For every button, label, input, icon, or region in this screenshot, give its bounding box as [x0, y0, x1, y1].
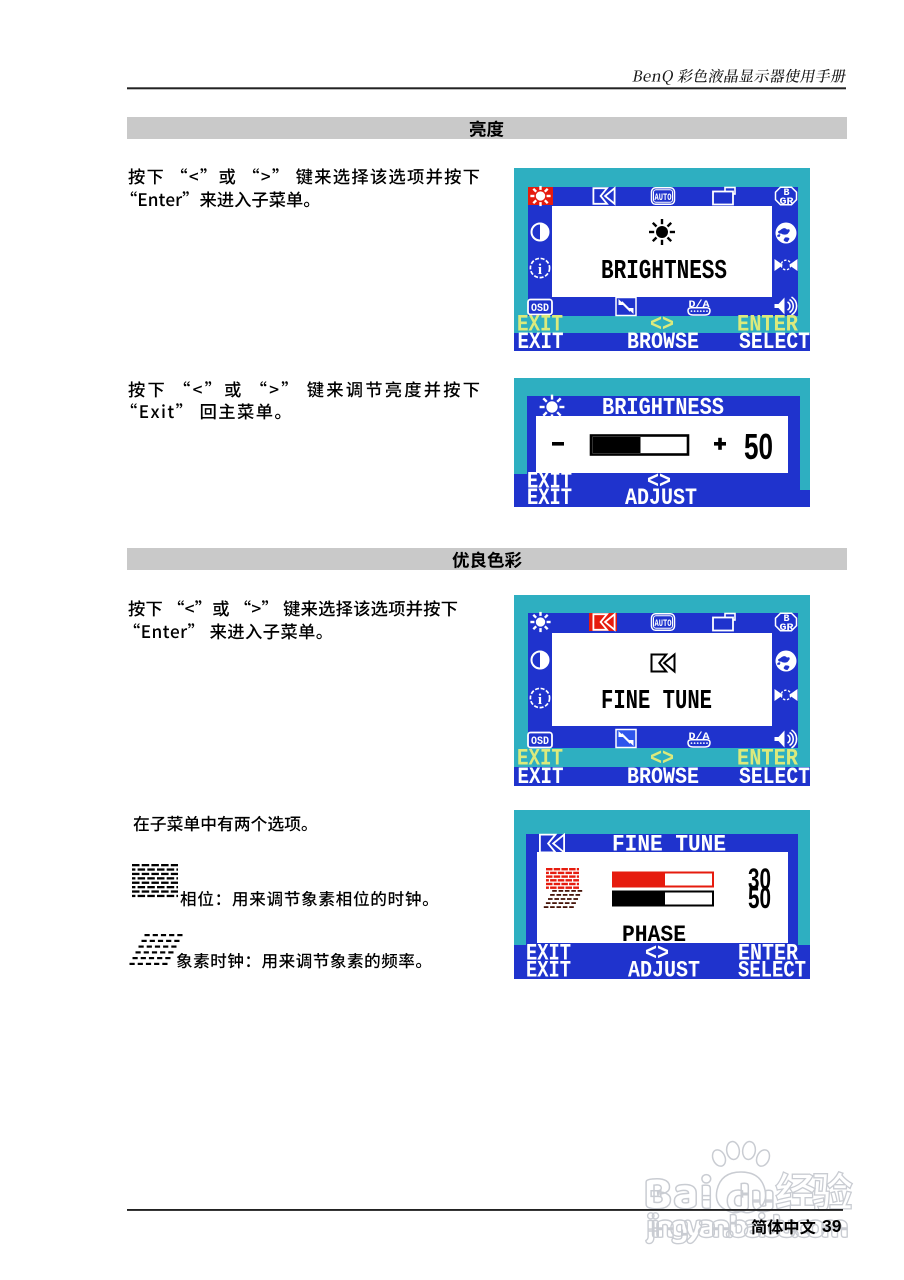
svg-text:GR: GR [780, 197, 794, 208]
svg-text:BROWSE: BROWSE [627, 329, 699, 355]
svg-text:EXIT: EXIT [527, 485, 572, 511]
svg-text:D/A: D/A [689, 731, 711, 743]
svg-text:FINE TUNE: FINE TUNE [601, 687, 712, 717]
svg-text:D/A: D/A [689, 299, 711, 311]
svg-text:SELECT: SELECT [739, 329, 810, 355]
svg-text:39: 39 [822, 1216, 842, 1236]
svg-text:AUTO: AUTO [655, 618, 672, 630]
svg-text:EXIT: EXIT [518, 764, 564, 790]
svg-text:SELECT: SELECT [738, 958, 806, 984]
svg-text:AUTO: AUTO [655, 192, 672, 204]
svg-text:EXIT: EXIT [518, 329, 564, 355]
svg-text:GR: GR [780, 623, 794, 634]
svg-text:i: i [538, 262, 542, 278]
svg-text:ADJUST: ADJUST [628, 958, 700, 984]
svg-text:i: i [538, 692, 542, 708]
svg-text:BROWSE: BROWSE [627, 764, 699, 790]
svg-text:EXIT: EXIT [526, 958, 571, 984]
svg-text:ADJUST: ADJUST [625, 485, 697, 511]
svg-text:BRIGHTNESS: BRIGHTNESS [601, 257, 727, 287]
svg-text:50: 50 [744, 426, 773, 467]
svg-text:50: 50 [748, 882, 771, 915]
svg-text:SELECT: SELECT [739, 764, 810, 790]
